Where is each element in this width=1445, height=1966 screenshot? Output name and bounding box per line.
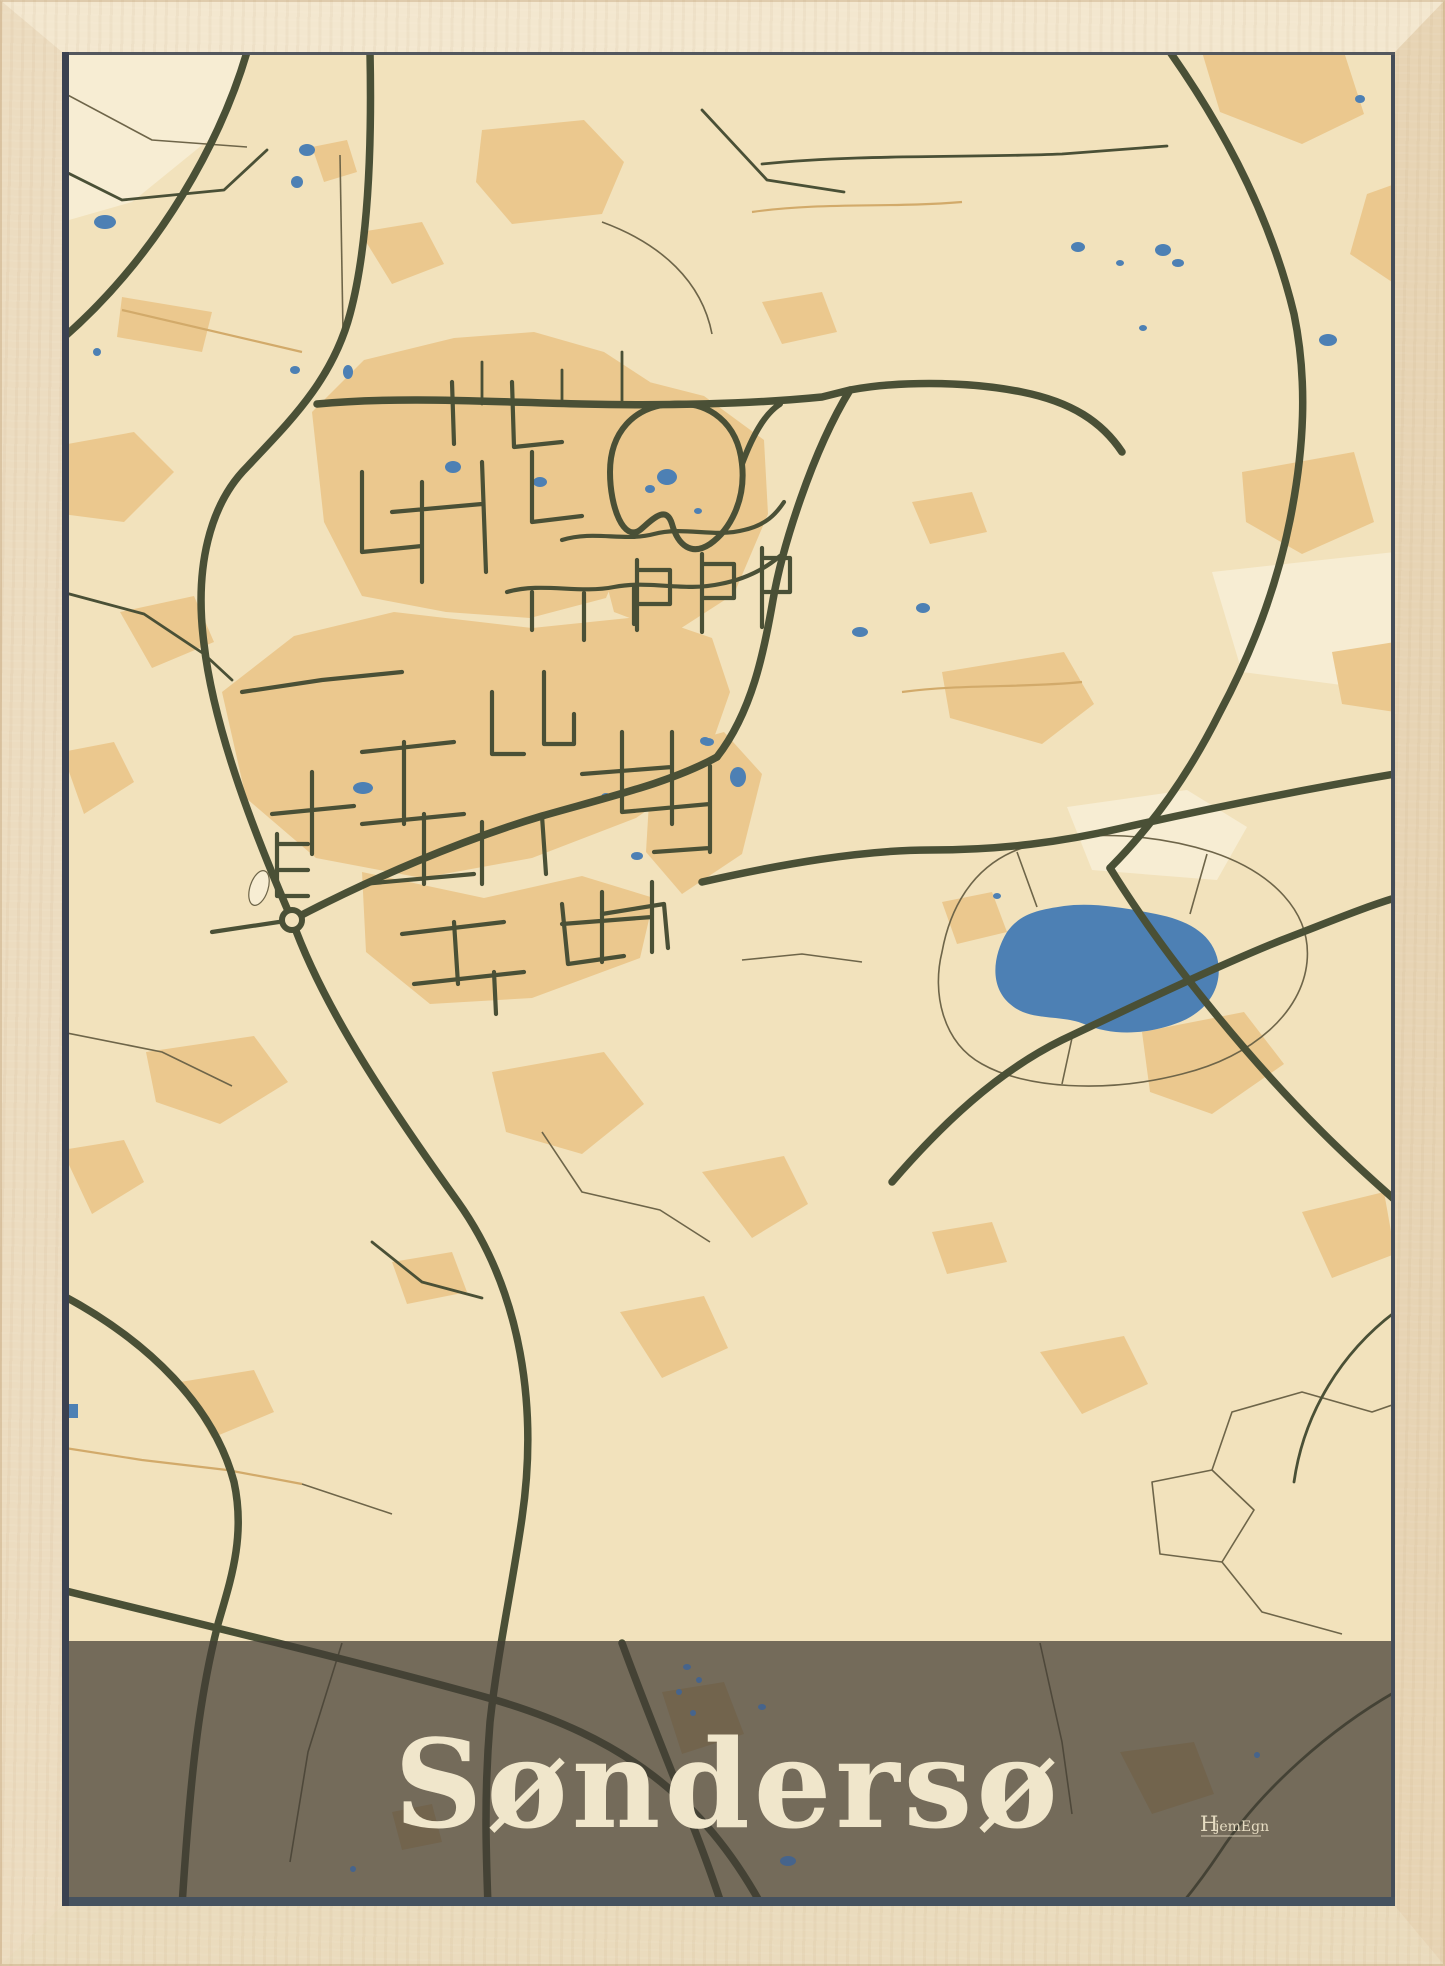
framed-map-poster: Søndersø H jemEgn	[0, 0, 1445, 1966]
map-graphic: Søndersø H jemEgn	[62, 52, 1395, 1906]
poster-title: Søndersø	[394, 1712, 1061, 1856]
wooden-frame: Søndersø H jemEgn	[0, 0, 1445, 1966]
lake	[995, 905, 1218, 1033]
poster: Søndersø H jemEgn	[62, 52, 1395, 1906]
brand-rest: jemEgn	[1213, 1819, 1269, 1835]
roundabout	[282, 910, 302, 930]
